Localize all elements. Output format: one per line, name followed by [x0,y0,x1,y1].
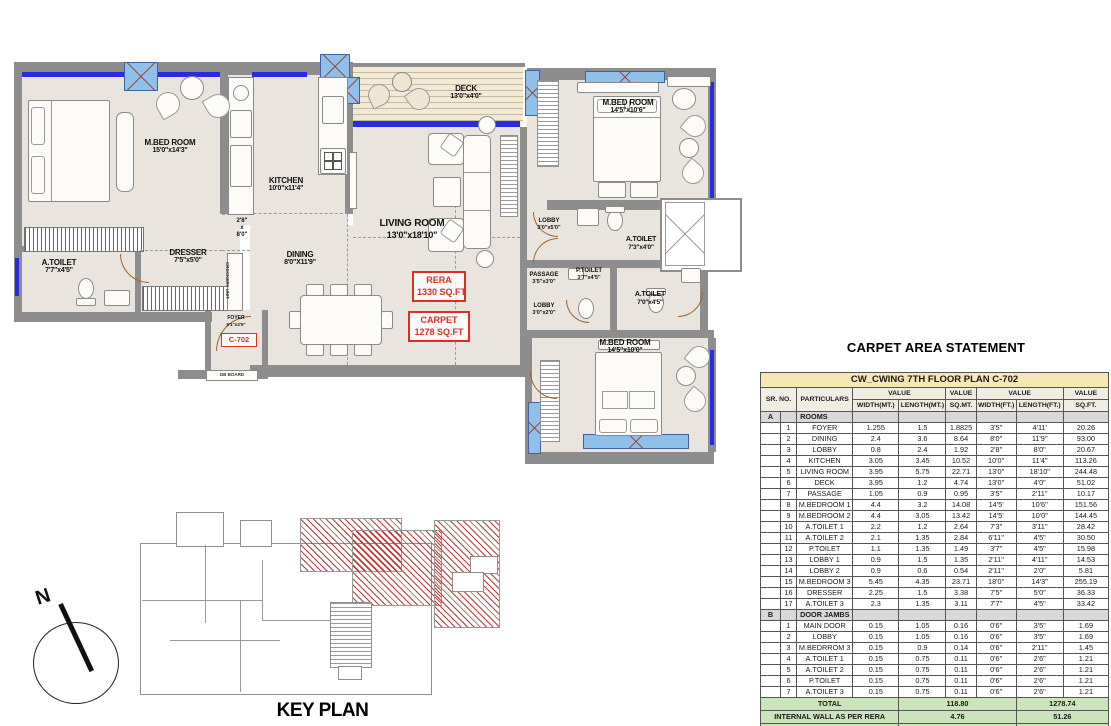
row-value: 2'11'' [976,555,1016,566]
row-value: 2'11'' [1016,643,1063,654]
row-value: 3.11 [946,599,976,610]
table-cell [1016,610,1063,621]
row-value: 4'0" [1016,478,1063,489]
row-value: 0.75 [899,676,946,687]
row-value: 4.4 [853,511,899,522]
col-header-value: VALUE [946,388,976,400]
row-value: 0.9 [853,555,899,566]
row-value: 0.15 [853,654,899,665]
row-value: 1.69 [1063,621,1108,632]
window-icon [15,258,19,296]
row-value: 30.50 [1063,533,1108,544]
wall [525,452,714,464]
row-value: 5 [781,665,797,676]
wall [14,312,212,322]
row-value: 255.19 [1063,577,1108,588]
row-value: 14.53 [1063,555,1108,566]
row-value: 7'3" [976,522,1016,533]
row-value: 1 [781,423,797,434]
room-label-mbedroom2: M.BED ROOM 14'5"x10'6" [578,98,678,115]
row-value: 2'8" [976,445,1016,456]
room-label-foyer: FOYER 5'1"x3'5" [214,316,258,327]
table-cell [761,555,781,566]
keyplan-unit-hatch [352,530,442,606]
room-label-lobby2: LOBBY 3'0"x2'0" [524,303,564,316]
table-row: 10A.TOILET 12.21.22.647'3"3'11''28.42 [761,522,1109,533]
table-cell [946,412,976,423]
row-value: 13'0" [976,478,1016,489]
table-subtitle: CW_CWING 7TH FLOOR PLAN C-702 [761,373,1109,388]
wall [250,365,527,377]
table-cell [761,665,781,676]
table-section-row: BDOOR JAMBS [761,610,1109,621]
window-sill-icon [24,227,144,252]
row-value: 6'11'' [976,533,1016,544]
table-cell [761,511,781,522]
table-row: 4A.TOILET 10.150.750.110'6"2'6"1.21 [761,654,1109,665]
duct-shaft-icon [500,135,518,217]
row-particulars: LOBBY 1 [797,555,853,566]
hob-icon [320,148,346,174]
row-value: 11'9'' [1016,434,1063,445]
chair-icon [330,284,348,296]
table-cell [761,533,781,544]
row-value: 4'11'' [1016,555,1063,566]
section-title: DOOR JAMBS [797,610,853,621]
row-value: 1.05 [899,621,946,632]
room-label-living: LIVING ROOM 13'0"x18'10" [352,218,472,240]
row-particulars: M.BEDRROM 3 [797,643,853,654]
wall [525,330,714,338]
row-value: 2.25 [853,588,899,599]
row-value: 0.16 [946,632,976,643]
window-slider-icon [583,434,689,449]
table-row: 4KITCHEN3.053.4510.5210'0"11'4"113.26 [761,456,1109,467]
window-icon [710,82,714,202]
row-particulars: M.BEDROOM 3 [797,577,853,588]
row-value: 0.11 [946,676,976,687]
row-value: 6 [781,676,797,687]
row-value: 0.11 [946,687,976,698]
section-title: ROOMS [797,412,853,423]
row-particulars: A.TOILET 3 [797,687,853,698]
db-board: DB BOARD [206,370,258,381]
row-value: 3 [781,445,797,456]
row-value: 9 [781,511,797,522]
table-cell [761,676,781,687]
vanity-icon [667,76,711,87]
table-total-row: TOTAL118.801278.74 [761,698,1109,711]
row-value: 3'5" [976,489,1016,500]
row-value: 14 [781,566,797,577]
row-value: 10.52 [946,456,976,467]
row-value: 2.64 [946,522,976,533]
row-value: 0.16 [946,621,976,632]
room-label-kitchen: KITCHEN 10'0"x11'4" [255,176,317,193]
table-cell [761,544,781,555]
table-cell [761,687,781,698]
row-value: 2'6" [1016,676,1063,687]
keyplan-outline [452,572,484,592]
table-row: 5A.TOILET 20.150.750.110'6"2'6"1.21 [761,665,1109,676]
row-value: 0'6" [976,687,1016,698]
crockery-unit-label: CROCKERY UNIT [225,262,230,299]
table-row: 9M.BEDROOM 24.43.0513.4214'5'10'0"144.45 [761,511,1109,522]
row-value: 3.95 [853,478,899,489]
table-cell [761,478,781,489]
row-value: 1.21 [1063,676,1108,687]
row-value: 4'5" [1016,533,1063,544]
row-value: 2.4 [853,434,899,445]
row-value: 10'0" [976,456,1016,467]
row-value: 3.95 [853,467,899,478]
bench-icon [630,182,658,198]
keyplan-outline [338,666,362,680]
section-id: B [761,610,781,621]
side-table-icon [433,177,461,207]
row-value: 18'10" [1016,467,1063,478]
table-header-row: SR. NO. PARTICULARS VALUE VALUE VALUE VA… [761,388,1109,400]
bed-icon [595,352,662,436]
table-row: 1FOYER1.2551.51.88253'5"4'11'20.26 [761,423,1109,434]
row-value: 1.21 [1063,665,1108,676]
row-value: 0.15 [853,687,899,698]
chair-icon [306,284,324,296]
row-value: 3'5" [976,423,1016,434]
row-value: 113.26 [1063,456,1108,467]
basin-icon [681,268,701,283]
wall [205,310,211,372]
basin-icon [104,290,130,306]
row-value: 0.6 [899,566,946,577]
console-icon [577,82,659,93]
row-value: 1.69 [1063,632,1108,643]
row-value: 3.05 [853,456,899,467]
row-value: 4'5" [1016,544,1063,555]
row-value: 144.45 [1063,511,1108,522]
room-label-deck: DECK 13'0"x4'0" [430,84,502,101]
row-value: 1 [781,621,797,632]
table-cell [976,610,1016,621]
row-value: 1.255 [853,423,899,434]
table-cell [761,621,781,632]
row-value: 0.95 [946,489,976,500]
row-value: 2.2 [853,522,899,533]
row-value: 36.33 [1063,588,1108,599]
unit-number-box: C-702 [221,333,257,347]
rera-area-box: RERA 1330 SQ.FT [412,271,466,302]
table-row: 3LOBBY0.82.41.922'8"8'0"20.67 [761,445,1109,456]
row-value: 0.15 [853,665,899,676]
row-particulars: M.BEDROOM 1 [797,500,853,511]
row-value: 4.74 [946,478,976,489]
row-value: 22.71 [946,467,976,478]
wardrobe-icon [537,80,559,167]
wc-tank-icon [76,298,96,306]
row-value: 15 [781,577,797,588]
table-cell [1063,412,1108,423]
keyplan-wall-line [142,600,262,601]
table-cell [899,412,946,423]
table-row: 3M.BEDRROM 30.150.90.140'6"2'11''1.45 [761,643,1109,654]
row-value: 2'6" [1016,665,1063,676]
total-sqft: 1278.74 [1016,698,1108,711]
row-value: 0.75 [899,654,946,665]
wardrobe-icon [142,286,234,311]
crockery-unit: CROCKERY UNIT [227,253,243,311]
row-value: 1.05 [899,632,946,643]
row-value: 5.45 [853,577,899,588]
carpet-area-statement-title: CARPET AREA STATEMENT [816,340,1056,355]
table-cell [761,566,781,577]
row-value: 2.1 [853,533,899,544]
row-value: 15.98 [1063,544,1108,555]
row-value: 3.6 [899,434,946,445]
row-value: 2'6" [1016,687,1063,698]
row-value: 0.9 [899,489,946,500]
table-cell [761,500,781,511]
bench-icon [598,182,626,198]
row-value: 3.38 [946,588,976,599]
row-value: 20.26 [1063,423,1108,434]
table-cell [761,588,781,599]
row-value: 1.5 [899,555,946,566]
row-value: 11 [781,533,797,544]
table-row: 8M.BEDROOM 14.43.214.0814'5'10'6''151.56 [761,500,1109,511]
table-cell [899,610,946,621]
row-value: 28.42 [1063,522,1108,533]
row-value: 16 [781,588,797,599]
side-table-icon [476,250,494,268]
row-value: 11'4" [1016,456,1063,467]
row-value: 1.35 [946,555,976,566]
armchair-icon [428,133,464,165]
row-value: 1.2 [899,478,946,489]
col-header-particulars: PARTICULARS [797,388,853,412]
table-cell [781,610,797,621]
window-slider-icon [124,62,158,91]
row-particulars: A.TOILET 2 [797,665,853,676]
total-sqft: 51.26 [1016,711,1108,724]
col-header-sq-mt: SQ.MT. [946,400,976,412]
row-value: 5.75 [899,467,946,478]
keyplan-wall-line [240,600,241,692]
col-header-value: VALUE [976,388,1063,400]
row-value: 3'11'' [1016,522,1063,533]
row-value: 1.45 [1063,643,1108,654]
room-label-lobby1: LOBBY 3'0"x5'0" [530,218,568,231]
room-label-mbedroom3: M.BED ROOM 14'5"x10'0" [570,338,680,355]
row-value: 7'5" [976,588,1016,599]
row-value: 13'0" [976,467,1016,478]
table-row: 11A.TOILET 22.11.352.846'11''4'5"30.50 [761,533,1109,544]
row-value: 5 [781,467,797,478]
row-value: 0'6" [976,654,1016,665]
row-value: 4 [781,654,797,665]
row-value: 1.35 [899,533,946,544]
table-total-row: INTERNAL WALL AS PER RERA4.7651.26 [761,711,1109,724]
col-header-length-ft: LENGTH(FT.) [1016,400,1063,412]
row-value: 33.42 [1063,599,1108,610]
room-label-atoilet1: A.TOILET 7'3"x4'0" [612,236,670,252]
row-particulars: A.TOILET 2 [797,533,853,544]
wc-icon [607,210,623,231]
row-particulars: P.TOILET [797,676,853,687]
window-icon [252,72,307,77]
row-value: 18'0" [976,577,1016,588]
table-row: 2DINING2.43.68.648'0"11'9''93.00 [761,434,1109,445]
col-header-width-mt: WIDTH(MT.) [853,400,899,412]
row-particulars: M.BEDROOM 2 [797,511,853,522]
room-label-dresser: DRESSER 7'5"x5'0" [148,248,228,265]
window-icon [22,72,124,77]
row-particulars: LIVING ROOM [797,467,853,478]
table-section-row: AROOMS [761,412,1109,423]
north-label: N [33,584,54,610]
sink-icon [233,85,249,101]
row-value: 13 [781,555,797,566]
floor-plan-sheet: CROCKERY UNIT [0,0,1111,726]
table-cell [946,610,976,621]
row-value: 1.1 [853,544,899,555]
table-row: 13LOBBY 10.91.51.352'11''4'11''14.53 [761,555,1109,566]
row-value: 4.35 [899,577,946,588]
col-header-width-ft: WIDTH(FT.) [976,400,1016,412]
row-value: 7 [781,687,797,698]
chair-icon [306,344,324,356]
row-value: 3'7" [976,544,1016,555]
table-icon [679,138,699,158]
room-label-ptoilet: P.TOILET 3'7"x4'5" [566,268,612,281]
row-value: 1.35 [899,599,946,610]
sink-icon [322,96,344,124]
keyplan-staircase-icon [330,602,372,668]
row-value: 0.75 [899,665,946,676]
row-particulars: A.TOILET 1 [797,522,853,533]
row-value: 20.67 [1063,445,1108,456]
chair-icon [354,284,372,296]
table-row: 14LOBBY 20.90.60.542'11''2'0"5.81 [761,566,1109,577]
keyplan-outline [240,520,272,547]
row-value: 0'6" [976,632,1016,643]
row-value: 3 [781,643,797,654]
chair-icon [330,344,348,356]
row-particulars: MAIN DOOR [797,621,853,632]
total-sqmt: 4.76 [899,711,1016,724]
row-value: 2'0" [1016,566,1063,577]
row-value: 1.5 [899,423,946,434]
row-value: 8'0" [1016,445,1063,456]
row-particulars: DINING [797,434,853,445]
table-row: 15M.BEDROOM 35.454.3523.7118'0"14'3"255.… [761,577,1109,588]
row-particulars: FOYER [797,423,853,434]
row-value: 0.11 [946,665,976,676]
table-cell [761,456,781,467]
chair-icon [381,311,393,329]
table-cell [761,632,781,643]
window-slider-icon [320,54,350,79]
row-value: 3.2 [899,500,946,511]
window-icon [710,350,714,445]
table-row: 7A.TOILET 30.150.750.110'6"2'6"1.21 [761,687,1109,698]
row-value: 244.48 [1063,467,1108,478]
row-value: 0.14 [946,643,976,654]
keyplan-wall-line [205,545,206,623]
kitchen-cabinet [230,110,252,138]
row-value: 2.84 [946,533,976,544]
row-value: 3'5" [1016,632,1063,643]
table-icon [180,76,204,100]
row-value: 4'5" [1016,599,1063,610]
row-value: 0.9 [853,566,899,577]
row-value: 5.81 [1063,566,1108,577]
row-particulars: LOBBY 2 [797,566,853,577]
wc-icon [78,278,94,299]
row-value: 2'11'' [976,566,1016,577]
col-header-value: VALUE [1063,388,1108,400]
table-cell [761,577,781,588]
row-value: 0.9 [899,643,946,654]
row-particulars: A.TOILET 3 [797,599,853,610]
row-value: 0'6" [976,621,1016,632]
row-value: 6 [781,478,797,489]
row-value: 8.64 [946,434,976,445]
row-particulars: DECK [797,478,853,489]
row-value: 1.8825 [946,423,976,434]
table-subtitle-row: CW_CWING 7TH FLOOR PLAN C-702 [761,373,1109,388]
row-value: 1.5 [899,588,946,599]
row-value: 5'0" [1016,588,1063,599]
col-header-length-mt: LENGTH(MT.) [899,400,946,412]
chair-icon [354,344,372,356]
table-cell [976,412,1016,423]
row-value: 10.17 [1063,489,1108,500]
row-value: 0.15 [853,676,899,687]
table-cell [761,654,781,665]
row-value: 14'3" [1016,577,1063,588]
table-cell [1063,610,1108,621]
col-header-value: VALUE [853,388,946,400]
table-cell [853,610,899,621]
row-value: 0.15 [853,621,899,632]
row-value: 0.75 [899,687,946,698]
row-value: 13.42 [946,511,976,522]
row-value: 2'11'' [1016,489,1063,500]
table-row: 5LIVING ROOM3.955.7522.7113'0"18'10"244.… [761,467,1109,478]
row-value: 93.00 [1063,434,1108,445]
row-value: 14.08 [946,500,976,511]
dining-table-icon [300,295,382,345]
row-value: 2.4 [899,445,946,456]
row-value: 10'0" [1016,511,1063,522]
row-value: 1.21 [1063,654,1108,665]
table-cell [761,423,781,434]
wall [353,63,525,67]
total-label: TOTAL [761,698,899,711]
row-particulars: LOBBY [797,445,853,456]
table-row: 6P.TOILET0.150.750.110'6"2'6"1.21 [761,676,1109,687]
row-value: 0'6" [976,676,1016,687]
row-value: 1.49 [946,544,976,555]
row-value: 3.45 [899,456,946,467]
room-label-atoilet2: A.TOILET 7'0"x4'5" [620,291,680,307]
row-particulars: PASSAGE [797,489,853,500]
row-value: 0.8 [853,445,899,456]
row-value: 0'6" [976,643,1016,654]
table-cell [761,643,781,654]
table-cell [853,412,899,423]
row-value: 151.56 [1063,500,1108,511]
